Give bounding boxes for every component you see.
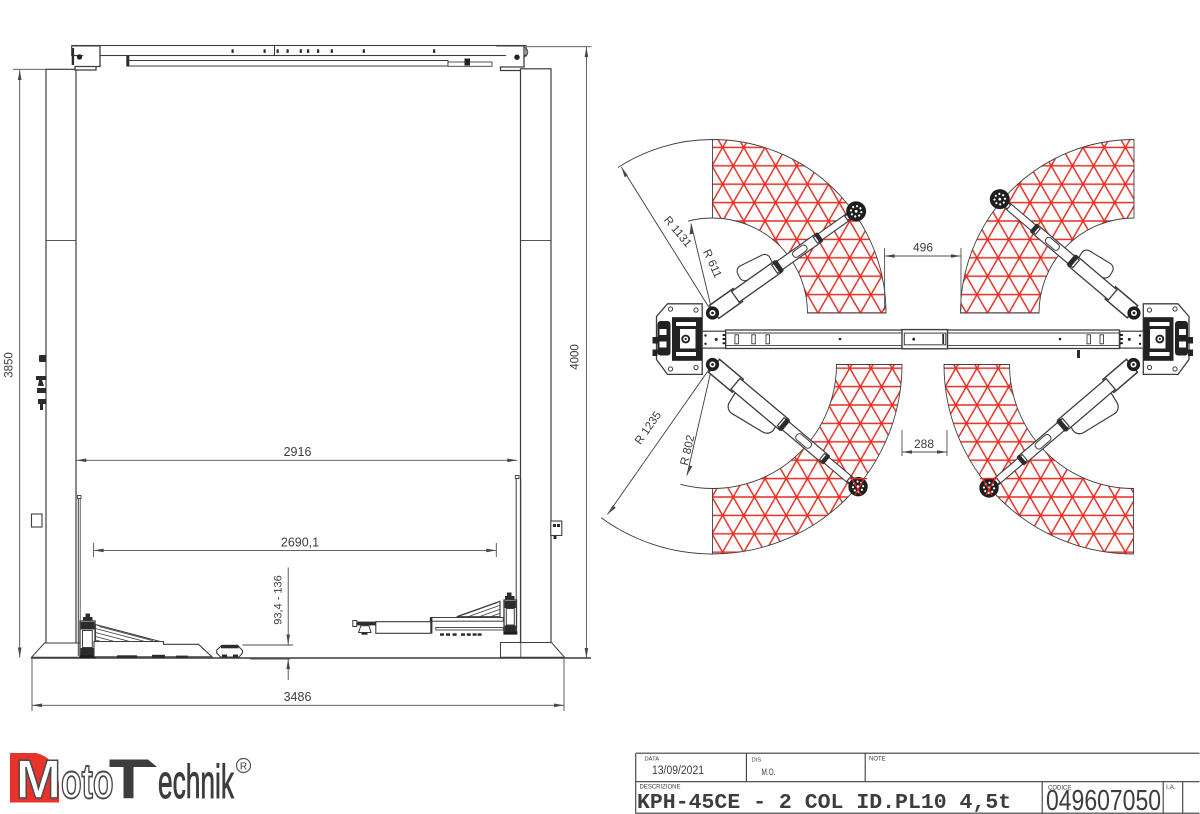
svg-text:R 1131: R 1131 [661, 214, 693, 249]
svg-text:13/09/2021: 13/09/2021 [652, 765, 704, 777]
svg-text:4000: 4000 [570, 344, 582, 370]
svg-text:R 1235: R 1235 [633, 410, 664, 447]
svg-text:oto: oto [61, 754, 114, 809]
svg-text:NOTE: NOTE [869, 757, 886, 763]
svg-text:2690,1: 2690,1 [281, 536, 319, 550]
svg-text:M: M [16, 748, 62, 810]
svg-text:M.O.: M.O. [762, 767, 776, 777]
svg-text:R 802: R 802 [679, 434, 698, 467]
svg-text:049607050: 049607050 [1046, 785, 1161, 814]
svg-text:R: R [240, 761, 247, 772]
svg-text:288: 288 [914, 437, 934, 451]
svg-text:DESCRIZIONE: DESCRIZIONE [640, 785, 681, 791]
svg-text:echnik: echnik [158, 757, 235, 809]
svg-text:KPH-45CE - 2 COL ID.PL10 4,5t: KPH-45CE - 2 COL ID.PL10 4,5t [637, 791, 1011, 814]
svg-text:DIS: DIS [752, 758, 762, 764]
svg-text:2916: 2916 [284, 445, 312, 459]
svg-text:3486: 3486 [284, 690, 312, 704]
svg-text:DATA: DATA [645, 757, 660, 763]
svg-text:I.A.: I.A. [1166, 784, 1176, 791]
svg-text:496: 496 [913, 241, 933, 255]
svg-text:93,4 - 136: 93,4 - 136 [273, 575, 285, 625]
svg-text:3850: 3850 [4, 352, 16, 378]
